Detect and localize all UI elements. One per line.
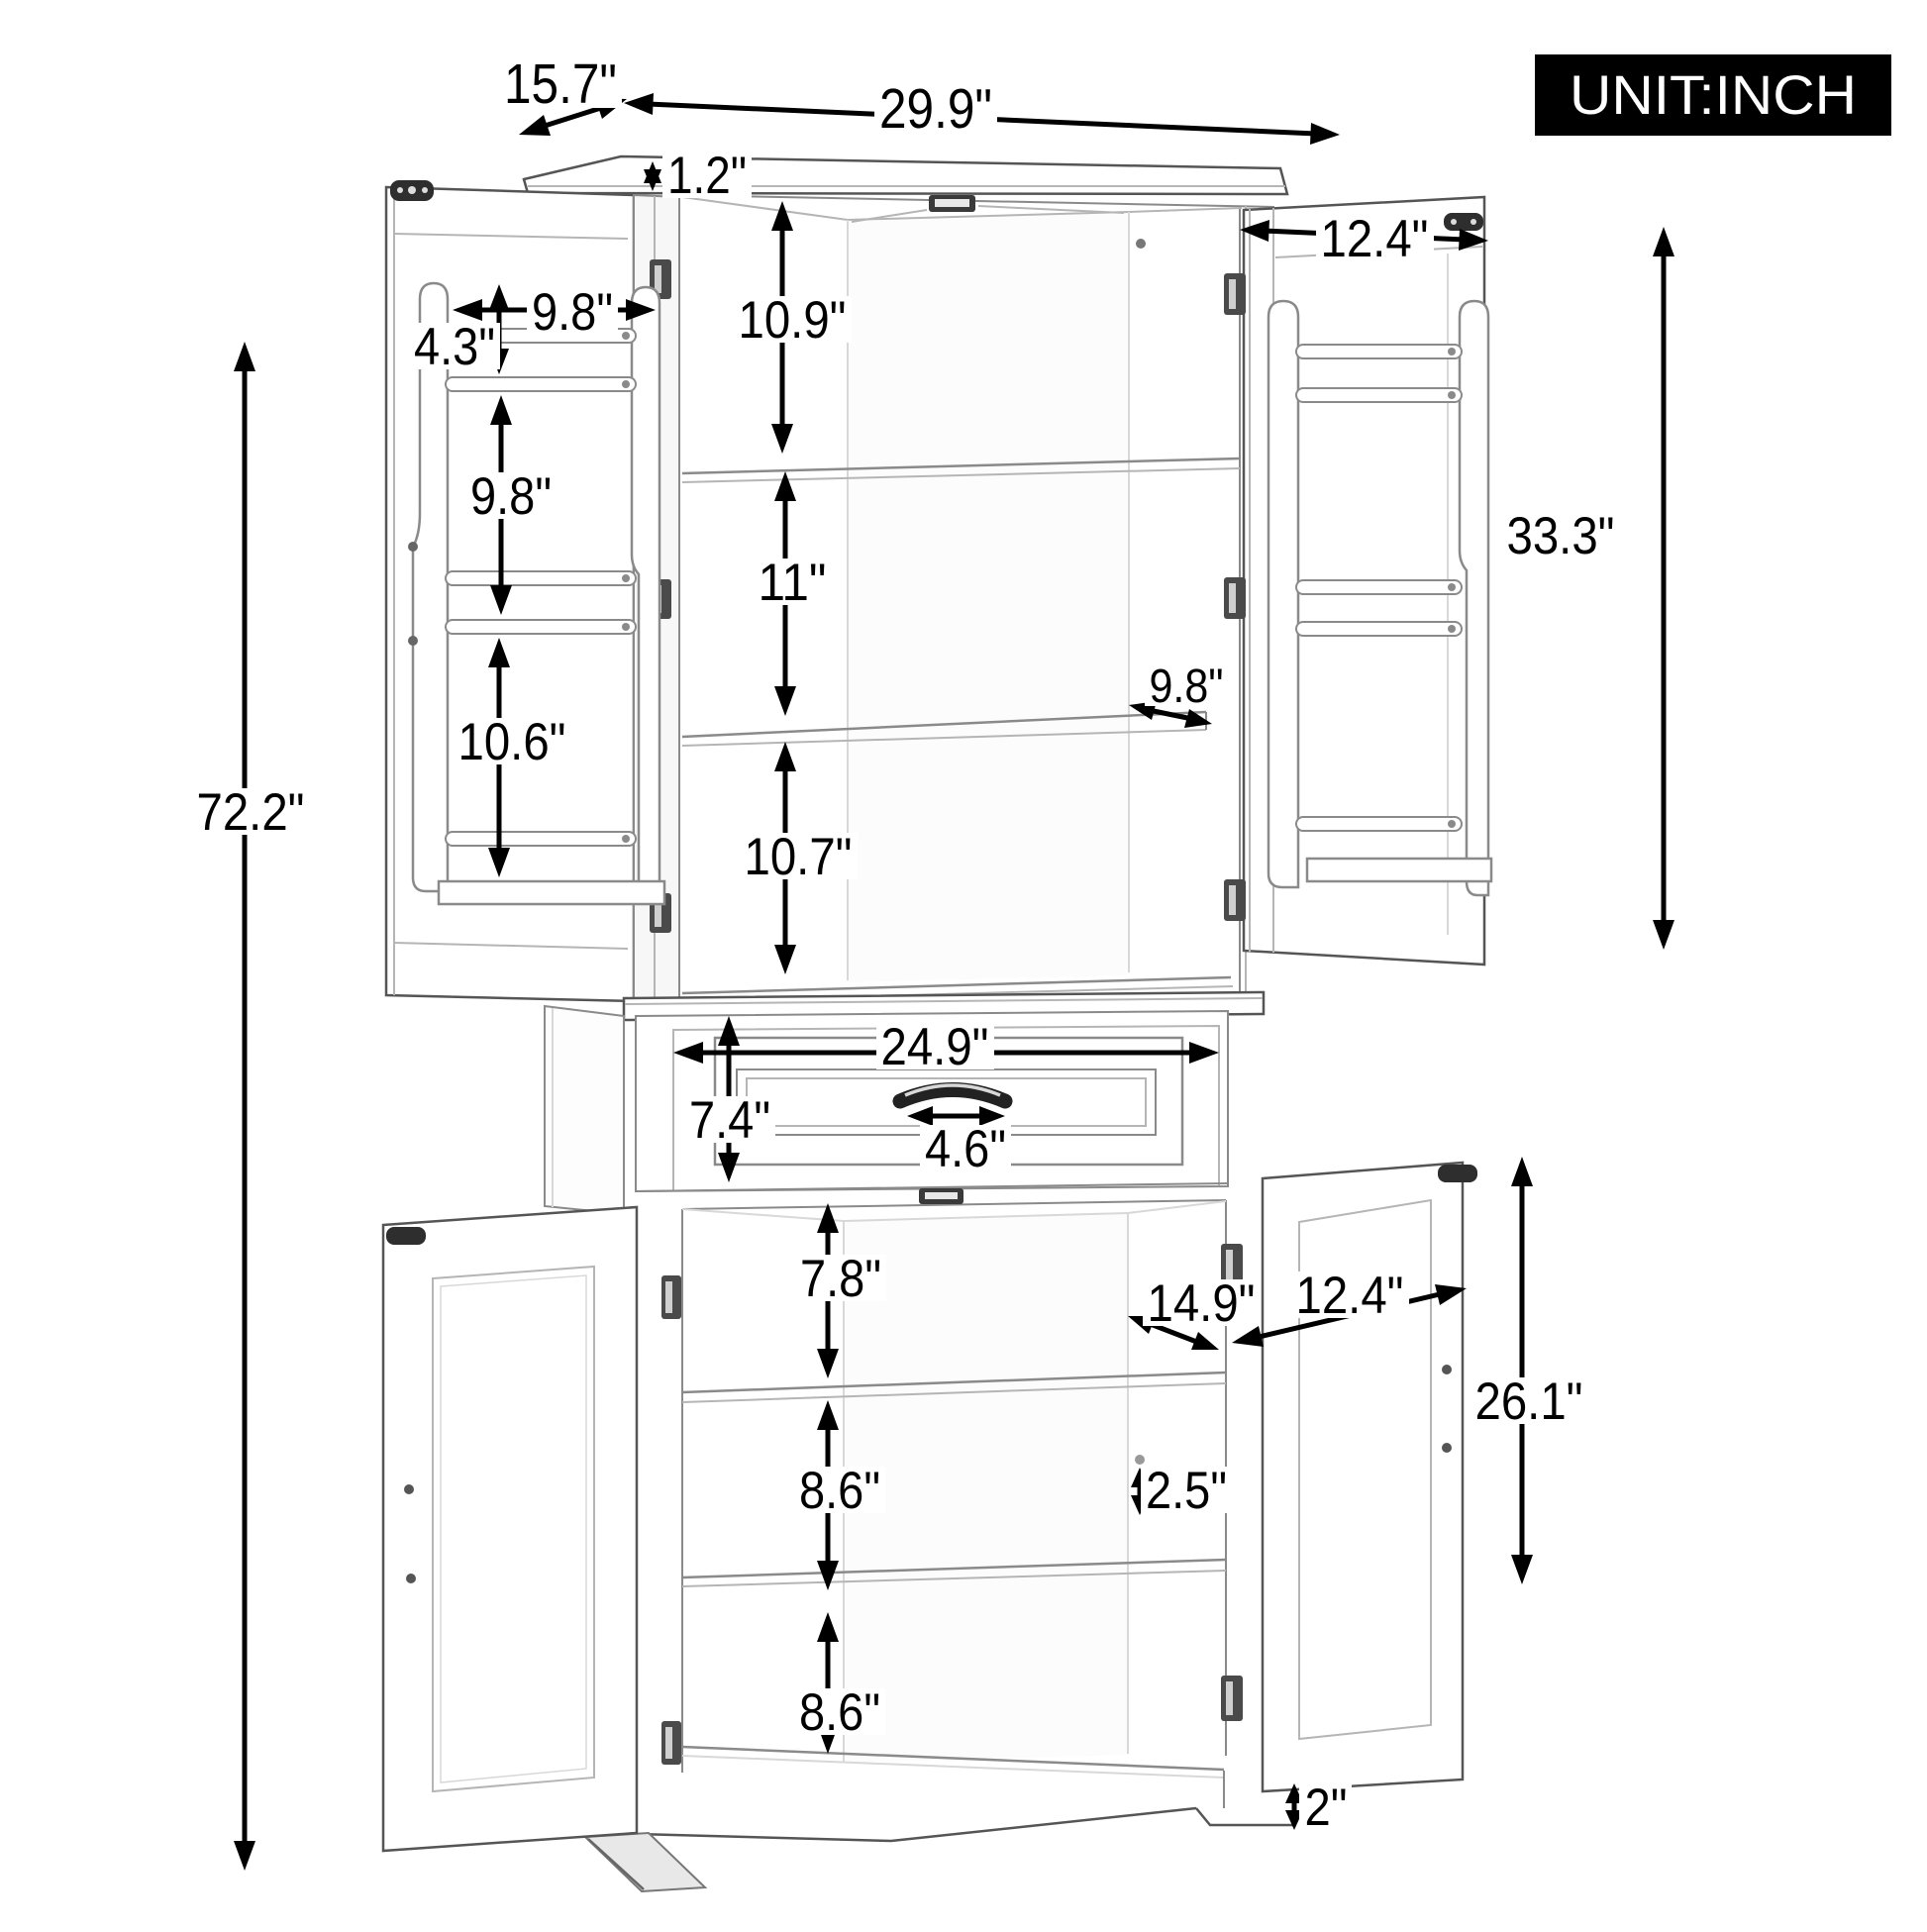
svg-text:12.4": 12.4" [1321, 210, 1429, 268]
svg-text:2.5": 2.5" [1146, 1462, 1227, 1520]
svg-text:14.9": 14.9" [1148, 1274, 1256, 1333]
svg-text:1.2": 1.2" [667, 147, 747, 205]
svg-text:2": 2" [1305, 1779, 1348, 1837]
svg-text:26.1": 26.1" [1475, 1373, 1583, 1431]
svg-text:12.4": 12.4" [1296, 1267, 1404, 1325]
svg-text:8.6": 8.6" [799, 1462, 880, 1520]
svg-text:33.3": 33.3" [1507, 507, 1615, 565]
svg-text:9.8": 9.8" [470, 467, 552, 526]
svg-text:24.9": 24.9" [881, 1018, 989, 1076]
svg-text:15.7": 15.7" [504, 52, 617, 116]
svg-text:10.6": 10.6" [458, 713, 566, 771]
svg-text:7.4": 7.4" [689, 1091, 770, 1150]
svg-text:10.7": 10.7" [745, 828, 853, 886]
svg-text:UNIT:INCH: UNIT:INCH [1570, 63, 1857, 126]
svg-text:10.9": 10.9" [739, 291, 847, 350]
svg-text:8.6": 8.6" [799, 1683, 880, 1742]
svg-text:7.8": 7.8" [800, 1250, 881, 1308]
svg-text:4.6": 4.6" [925, 1120, 1006, 1178]
svg-text:72.2": 72.2" [197, 783, 305, 842]
svg-text:4.3": 4.3" [414, 318, 495, 376]
svg-text:9.8": 9.8" [1150, 661, 1224, 713]
svg-text:29.9": 29.9" [879, 77, 992, 141]
svg-text:9.8": 9.8" [532, 283, 613, 342]
svg-text:11": 11" [759, 554, 827, 612]
